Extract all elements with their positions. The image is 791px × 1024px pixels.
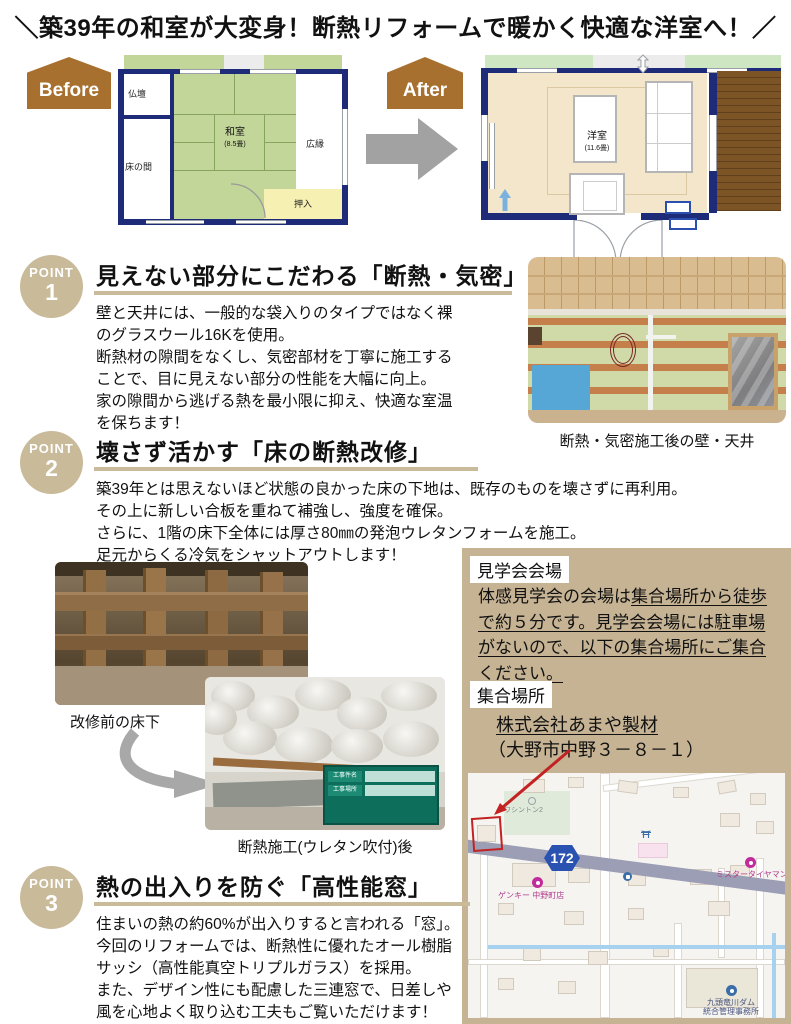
room-label-butsudan: 仏壇: [128, 87, 146, 100]
plan-room: [685, 55, 781, 68]
site-info-board: 工事件名 工事場所: [323, 765, 439, 825]
point-badge-text: POINT: [20, 876, 83, 891]
point2-heading: 壊さず活かす「床の断熱改修」: [96, 433, 432, 467]
point-badge-text: POINT: [20, 265, 83, 280]
plan-wall: [342, 185, 348, 225]
dam-label-line2: 統合管理事務所: [703, 1007, 759, 1016]
plan-wall: [342, 69, 348, 109]
plan-room: [485, 55, 593, 68]
map-road: [480, 848, 488, 1018]
shrine-building: [638, 843, 668, 858]
photo-insulated-wall: [528, 257, 786, 423]
plan-window: [236, 220, 286, 224]
point2-rule: [94, 467, 478, 471]
plan-wall: [709, 73, 717, 115]
fixture-outline: [669, 218, 697, 230]
point3-heading: 熱の出入りを防ぐ「高性能窓」: [96, 868, 432, 902]
map-pin-genky: [532, 877, 543, 888]
plan-window: [481, 115, 488, 161]
map-label-tireman: ミスタータイヤマン: [716, 870, 785, 879]
floorplan-after: 洋室 (11.6畳): [477, 55, 789, 231]
map-label-dam-office: 九頭竜川ダム 統合管理事務所: [686, 998, 776, 1016]
meeting-label: 集合場所: [470, 681, 552, 708]
page-title: ＼築39年の和室が大変身！断熱リフォームで暖かく快適な洋室へ！／: [0, 8, 791, 43]
point1-photo-caption: 断熱・気密施工後の壁・天井: [528, 430, 786, 451]
point3-badge: POINT 3: [20, 866, 83, 929]
venue-text: 体感見学会の会場は集合場所から徒歩で約５分です。見学会会場には駐車場がないので、…: [478, 584, 781, 686]
tatami-line: [174, 114, 296, 115]
before-badge: Before: [27, 57, 111, 109]
plan-corridor: [224, 55, 264, 69]
room-name: 洋室: [587, 131, 607, 142]
board-label-2: 工事場所: [328, 785, 362, 796]
bus-stop-icon: [623, 872, 632, 881]
before-after-arrow-icon: [366, 118, 458, 180]
room-label-hiroen: 広縁: [306, 137, 324, 150]
room-label-tokonoma: 床の間: [125, 160, 152, 173]
door-swing-arc: [230, 183, 266, 219]
map-road: [468, 959, 785, 965]
wood-deck: [717, 71, 781, 211]
tatami-line: [234, 74, 235, 114]
point-number: 3: [20, 891, 83, 915]
shrine-icon: [640, 829, 652, 839]
door-direction-arrow-icon: [637, 54, 649, 74]
point3-rule: [94, 902, 470, 906]
plan-wall: [118, 115, 170, 119]
plan-room: [124, 55, 224, 69]
room-name: 和室: [225, 127, 245, 138]
point1-badge: POINT 1: [20, 255, 83, 318]
route-number: 172: [550, 850, 573, 866]
map-river: [488, 945, 785, 949]
dam-label-line1: 九頭竜川ダム: [707, 998, 755, 1007]
plan-wall: [118, 69, 124, 225]
plan-window: [146, 220, 204, 224]
map-pin-dam-office: [726, 985, 737, 996]
plan-window: [342, 109, 348, 185]
plan-wall: [709, 171, 717, 213]
photo-urethane-after: 工事件名 工事場所: [205, 677, 445, 830]
map-pin-tireman: [745, 857, 756, 868]
point2-badge: POINT 2: [20, 431, 83, 494]
red-arrow: [462, 742, 791, 826]
entrance-arrow-icon: [499, 189, 511, 211]
room-label-yoshitsu: 洋室 (11.6畳): [557, 131, 637, 153]
point3-body: 住まいの熱の約60%が出入りすると言われる「窓」。 今回のリフォームでは、断熱性…: [96, 914, 481, 1024]
after-badge-label: After: [403, 80, 447, 102]
venue-text-plain: 体感見学会の会場は: [478, 587, 631, 606]
venue-panel: 見学会会場 体感見学会の会場は集合場所から徒歩で約５分です。見学会会場には駐車場…: [462, 548, 791, 1024]
point2-photo-after-caption: 断熱施工(ウレタン吹付)後: [205, 836, 445, 857]
venue-label: 見学会会場: [470, 556, 569, 583]
plan-room: [264, 55, 342, 69]
after-badge: After: [387, 57, 463, 109]
sofa: [645, 81, 693, 173]
room-label-washitsu: 和室 (8.5畳): [205, 127, 265, 149]
before-badge-label: Before: [39, 80, 99, 102]
board-label-1: 工事件名: [328, 771, 362, 782]
floorplan-before: 和室 (8.5畳) 仏壇 床の間 広縁 押入: [118, 55, 348, 225]
point1-body: 壁と天井には、一般的な袋入りのタイプではなく裸 のグラスウール16Kを使用。 断…: [96, 303, 526, 435]
point-number: 1: [20, 280, 83, 304]
plan-window: [709, 115, 717, 171]
fixture-outline: [665, 201, 691, 214]
tatami-line: [174, 170, 296, 171]
tatami-line: [264, 142, 296, 143]
point1-heading: 見えない部分にこだわる「断熱・気密」: [96, 257, 528, 291]
map-road: [674, 923, 682, 1018]
armchair: [569, 173, 625, 215]
plan-door-panel: [489, 123, 495, 189]
room-label-oshiire: 押入: [264, 197, 342, 210]
point-badge-text: POINT: [20, 441, 83, 456]
point-number: 2: [20, 456, 83, 480]
map-label-genky: ゲンキー 中野町店: [498, 891, 564, 900]
room-size: (11.6畳): [585, 145, 610, 152]
room-size: (8.5畳): [224, 141, 245, 148]
flyer-page: ＼築39年の和室が大変身！断熱リフォームで暖かく快適な洋室へ！／ Before: [0, 0, 791, 1024]
company-name: 株式会社あまや製材: [496, 711, 658, 737]
point1-rule: [94, 291, 512, 295]
